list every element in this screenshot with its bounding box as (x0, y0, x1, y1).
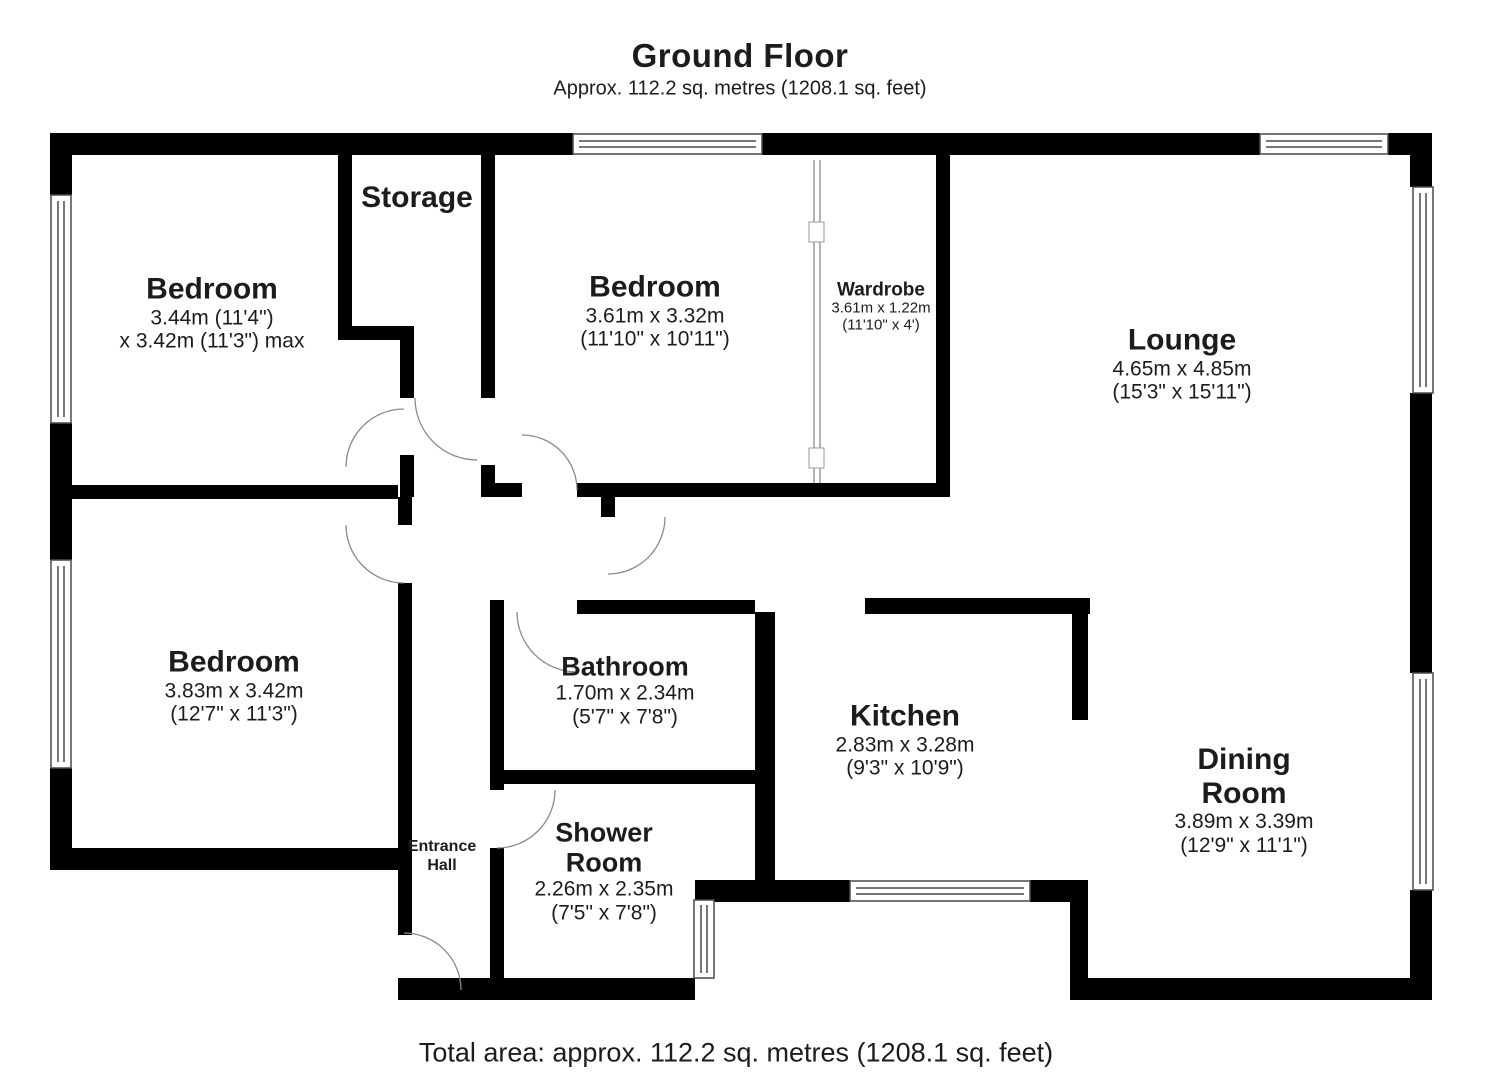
room-name-line2: Room (535, 847, 674, 877)
room-dimensions-imperial: (12'9" x 11'1") (1175, 834, 1314, 858)
room-label-dining-room: Dining Room 3.89m x 3.39m (12'9" x 11'1"… (1175, 743, 1314, 857)
partition-notch (809, 448, 824, 468)
door-arc-hall-lounge (608, 517, 665, 574)
wall (481, 155, 495, 398)
room-name-line1: Shower (535, 817, 674, 847)
wall (50, 848, 412, 870)
room-name: Bedroom (165, 646, 304, 680)
room-dimensions-metric: 3.61m x 1.22m (831, 301, 930, 318)
wall (762, 133, 1260, 155)
room-name: Bedroom (580, 271, 729, 305)
wall (338, 326, 414, 340)
walls (50, 133, 1432, 1000)
room-dimensions-imperial: (15'3" x 15'11") (1112, 381, 1251, 405)
room-dimensions-metric: 4.65m x 4.85m (1112, 357, 1251, 381)
room-dimensions-metric: 3.83m x 3.42m (165, 679, 304, 703)
room-label-bathroom: Bathroom 1.70m x 2.34m (5'7" x 7'8") (556, 651, 695, 728)
wall (1410, 393, 1432, 673)
wall (490, 848, 504, 978)
room-dimensions-metric: 1.70m x 2.34m (556, 682, 695, 706)
room-label-lounge: Lounge 4.65m x 4.85m (15'3" x 15'11") (1112, 324, 1251, 405)
room-name-line2: Room (1175, 776, 1314, 810)
room-dimensions-imperial: (11'10" x 10'11") (580, 328, 729, 352)
window-glyph (573, 134, 762, 154)
wall (490, 770, 755, 784)
room-dimensions-metric: 2.83m x 3.28m (836, 733, 975, 757)
room-name: Bedroom (120, 273, 305, 307)
wall (398, 978, 695, 1000)
wall (398, 497, 412, 525)
wall (601, 497, 615, 517)
room-name: Bathroom (556, 651, 695, 681)
room-label-bedroom-bottom-left: Bedroom 3.83m x 3.42m (12'7" x 11'3") (165, 646, 304, 727)
wall (936, 155, 950, 497)
door-arc-bedroom-top-middle (522, 435, 577, 490)
room-label-storage: Storage (361, 181, 473, 215)
room-dimensions-metric: 3.89m x 3.39m (1175, 810, 1314, 834)
total-area-text: Total area: approx. 112.2 sq. metres (12… (419, 1038, 1053, 1069)
window-glyph (850, 881, 1030, 901)
room-dimensions-imperial: (11'10" x 4') (831, 318, 930, 335)
window-glyph (1413, 673, 1433, 890)
wall (577, 483, 950, 497)
wall (50, 423, 72, 560)
room-label-bedroom-top-middle: Bedroom 3.61m x 3.32m (11'10" x 10'11") (580, 271, 729, 352)
door-arc-bedroom-bottom-left (346, 525, 404, 583)
wall (865, 598, 1090, 614)
wall (481, 483, 522, 497)
wall (1070, 890, 1088, 978)
room-dimensions-metric: 3.44m (11'4") (120, 306, 305, 330)
window-glyph (694, 900, 714, 978)
window-glyph (51, 560, 71, 768)
room-name: Lounge (1112, 324, 1251, 358)
room-label-bedroom-top-left: Bedroom 3.44m (11'4") x 3.42m (11'3") ma… (120, 273, 305, 354)
room-label-shower-room: Shower Room 2.26m x 2.35m (7'5" x 7'8") (535, 817, 674, 925)
room-dimensions-imperial: (7'5" x 7'8") (535, 901, 674, 925)
room-label-entrance-hall: Entrance Hall (408, 837, 476, 875)
wall (1030, 880, 1088, 902)
wall (400, 340, 414, 398)
wall (1070, 978, 1432, 1000)
partition-notch (809, 222, 824, 242)
wall (398, 583, 412, 935)
wardrobe-partition (809, 160, 824, 483)
room-label-wardrobe: Wardrobe 3.61m x 1.22m (11'10" x 4') (831, 280, 930, 335)
room-name-line1: Entrance (408, 837, 476, 856)
door-arc-bedroom-top-left (346, 409, 404, 467)
window-glyph (1413, 187, 1433, 393)
window-glyph (51, 195, 71, 423)
window-glyph (1260, 134, 1388, 154)
door-arc-hall-corridor (415, 398, 477, 460)
wall (338, 155, 352, 326)
room-name-line2: Hall (408, 856, 476, 875)
room-name-line1: Dining (1175, 743, 1314, 777)
room-dimensions-imperial: x 3.42m (11'3") max (120, 330, 305, 354)
wall (755, 612, 775, 902)
room-name: Storage (361, 181, 473, 215)
room-name: Kitchen (836, 700, 975, 734)
wall (50, 133, 573, 155)
room-dimensions-imperial: (5'7" x 7'8") (556, 705, 695, 729)
wall (490, 600, 504, 790)
wall (72, 485, 398, 499)
room-name: Wardrobe (831, 280, 930, 301)
floorplan-drawing (0, 0, 1486, 1080)
room-label-kitchen: Kitchen 2.83m x 3.28m (9'3" x 10'9") (836, 700, 975, 781)
wall (50, 133, 72, 195)
floorplan-page: Ground Floor Approx. 112.2 sq. metres (1… (0, 0, 1486, 1080)
room-dimensions-imperial: (9'3" x 10'9") (836, 757, 975, 781)
room-dimensions-metric: 2.26m x 2.35m (535, 878, 674, 902)
wall (1410, 133, 1432, 187)
room-dimensions-imperial: (12'7" x 11'3") (165, 703, 304, 727)
wall (400, 455, 414, 497)
room-dimensions-metric: 3.61m x 3.32m (580, 304, 729, 328)
wall (577, 600, 755, 614)
wall (1072, 598, 1088, 720)
